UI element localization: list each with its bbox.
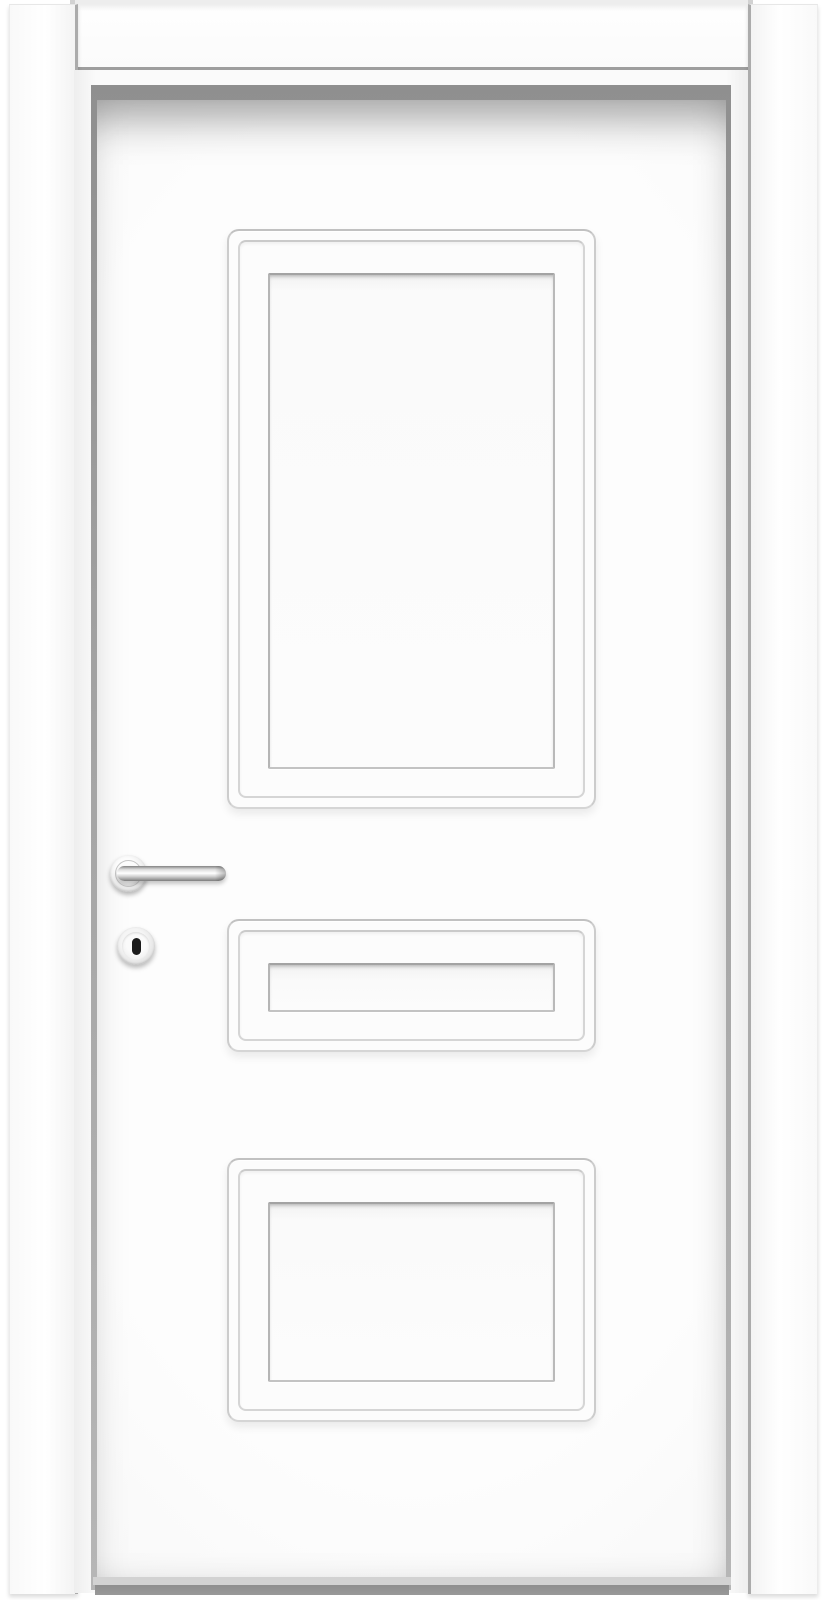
door-product-photo <box>0 0 823 1600</box>
panel-inner-field <box>268 963 555 1012</box>
door-leaf <box>97 100 726 1577</box>
recessed-panel-top <box>227 229 596 809</box>
door-bottom-gap-dark <box>95 1585 729 1595</box>
lever-tip-shading <box>215 866 226 881</box>
keyhole <box>132 938 141 955</box>
panel-inner-field <box>268 273 555 769</box>
door-bottom-gap-light <box>93 1577 731 1585</box>
panel-inner-field <box>268 1202 555 1382</box>
left-casing <box>9 4 78 1594</box>
recessed-panel-middle <box>227 919 596 1052</box>
right-casing <box>748 4 818 1594</box>
keyhole-escutcheon <box>117 927 155 965</box>
recessed-panel-bottom <box>227 1158 596 1422</box>
door-lever-handle <box>117 866 226 881</box>
head-casing <box>74 0 748 70</box>
